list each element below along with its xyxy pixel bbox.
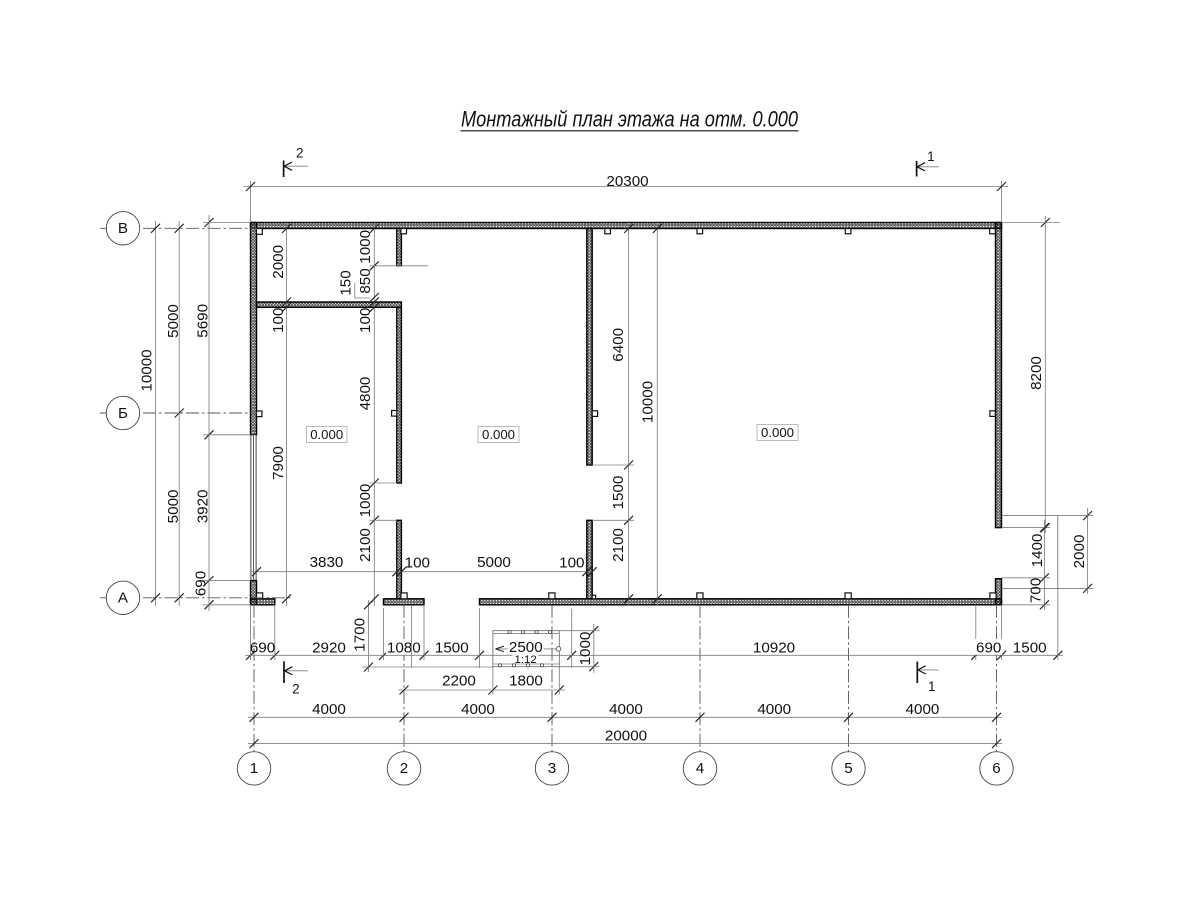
svg-text:20000: 20000 (605, 728, 647, 745)
svg-text:2: 2 (292, 682, 300, 697)
svg-text:0.000: 0.000 (761, 425, 794, 440)
svg-text:690: 690 (192, 571, 209, 596)
svg-text:150: 150 (337, 270, 354, 295)
svg-text:4000: 4000 (906, 701, 940, 718)
svg-text:100: 100 (357, 308, 374, 333)
svg-text:2000: 2000 (1071, 535, 1088, 569)
svg-text:1: 1 (250, 760, 258, 777)
svg-text:20300: 20300 (606, 173, 648, 190)
svg-text:10000: 10000 (139, 349, 156, 391)
svg-text:0.000: 0.000 (482, 427, 515, 442)
svg-text:3920: 3920 (194, 490, 211, 524)
svg-text:3830: 3830 (310, 554, 344, 571)
svg-text:850: 850 (357, 268, 374, 293)
svg-text:1700: 1700 (352, 618, 369, 652)
svg-text:5000: 5000 (477, 554, 511, 571)
svg-text:Монтажный план этажа на отм. 0: Монтажный план этажа на отм. 0.000 (461, 107, 798, 132)
svg-text:2920: 2920 (312, 639, 346, 656)
svg-text:1:12: 1:12 (515, 654, 537, 666)
svg-text:6: 6 (992, 760, 1000, 777)
svg-text:10000: 10000 (640, 381, 657, 423)
svg-text:2000: 2000 (270, 245, 287, 279)
svg-text:100: 100 (270, 308, 287, 333)
svg-text:100: 100 (405, 554, 430, 571)
svg-text:4000: 4000 (461, 701, 495, 718)
svg-text:1400: 1400 (1029, 534, 1046, 568)
svg-text:100: 100 (559, 554, 584, 571)
svg-text:10920: 10920 (753, 639, 795, 656)
svg-text:Б: Б (118, 405, 128, 422)
svg-text:5690: 5690 (194, 304, 211, 338)
svg-text:4000: 4000 (609, 701, 643, 718)
svg-text:4: 4 (696, 760, 704, 777)
svg-text:4000: 4000 (757, 701, 791, 718)
svg-text:2100: 2100 (357, 528, 374, 562)
svg-text:1: 1 (928, 679, 936, 694)
svg-text:0.000: 0.000 (310, 427, 343, 442)
svg-text:А: А (118, 590, 129, 607)
svg-text:4800: 4800 (357, 377, 374, 411)
svg-text:2200: 2200 (442, 672, 476, 689)
svg-text:1080: 1080 (387, 639, 421, 656)
svg-text:690: 690 (976, 639, 1001, 656)
svg-text:5000: 5000 (165, 304, 182, 338)
svg-text:1500: 1500 (610, 476, 627, 510)
svg-text:690: 690 (250, 639, 275, 656)
svg-text:5000: 5000 (165, 490, 182, 524)
svg-text:700: 700 (1028, 578, 1045, 603)
svg-text:1: 1 (927, 149, 935, 164)
svg-text:1000: 1000 (357, 484, 374, 518)
svg-text:8200: 8200 (1028, 356, 1045, 390)
svg-text:2: 2 (296, 146, 304, 161)
svg-text:1500: 1500 (435, 639, 469, 656)
svg-text:7900: 7900 (270, 446, 287, 480)
svg-text:1000: 1000 (577, 632, 594, 666)
svg-text:2: 2 (400, 760, 408, 777)
svg-text:В: В (118, 220, 128, 237)
svg-text:4000: 4000 (312, 701, 346, 718)
svg-text:1500: 1500 (1013, 639, 1047, 656)
svg-text:1800: 1800 (509, 672, 543, 689)
svg-text:5: 5 (844, 760, 852, 777)
svg-text:2100: 2100 (610, 528, 627, 562)
svg-text:3: 3 (548, 760, 556, 777)
svg-text:1000: 1000 (357, 230, 374, 264)
svg-text:6400: 6400 (610, 328, 627, 362)
